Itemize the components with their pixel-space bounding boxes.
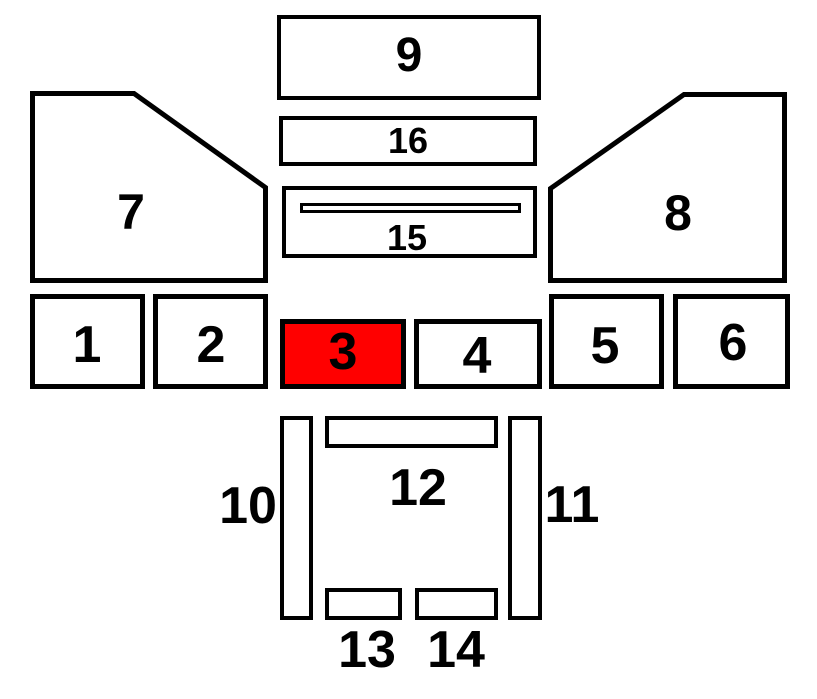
part-10-label: 10 — [219, 480, 277, 532]
part-2-label: 2 — [197, 319, 226, 371]
part-15-inner-bar — [300, 203, 521, 213]
part-11-shape[interactable] — [508, 416, 542, 620]
part-5-label: 5 — [591, 320, 620, 372]
part-7-outline[interactable] — [33, 94, 266, 281]
part-12-label: 12 — [389, 462, 447, 514]
part-4-label: 4 — [463, 330, 492, 382]
part-14-label: 14 — [427, 624, 485, 676]
part-12-shape[interactable] — [325, 416, 498, 448]
part-14-shape[interactable] — [415, 588, 498, 620]
part-7-shape[interactable] — [25, 86, 273, 288]
part-13-label: 13 — [338, 624, 396, 676]
parts-diagram: 9 16 15 7 8 1 2 3 4 5 6 10 11 12 13 14 — [0, 0, 817, 699]
part-10-shape[interactable] — [280, 416, 313, 620]
part-9-label: 9 — [396, 32, 423, 80]
part-7-label: 7 — [117, 187, 145, 237]
part-6-label: 6 — [719, 317, 748, 369]
part-11-label: 11 — [545, 479, 600, 531]
part-8-label: 8 — [664, 188, 692, 238]
part-13-shape[interactable] — [325, 588, 402, 620]
part-1-label: 1 — [73, 319, 102, 371]
part-15-label: 15 — [387, 220, 427, 256]
part-16-label: 16 — [388, 123, 428, 159]
part-3-label: 3 — [329, 326, 358, 378]
